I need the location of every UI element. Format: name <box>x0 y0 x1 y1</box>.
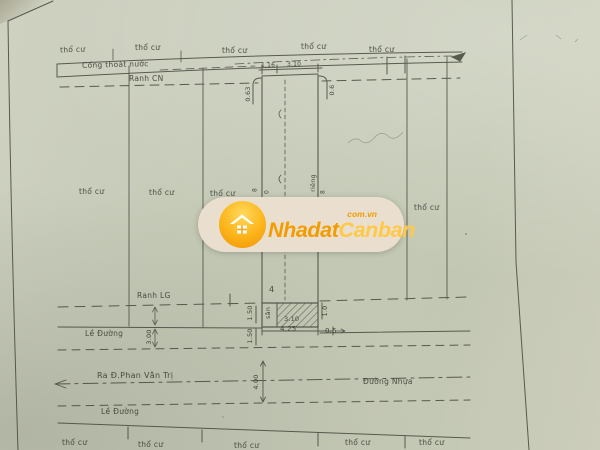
parcel-label: thổ cư <box>60 45 86 55</box>
yard-label: sân <box>264 307 272 319</box>
side-mark: 8 <box>252 188 259 192</box>
dim-right-depth: 1.0 <box>321 306 329 317</box>
watermark-logo: NhadatCanban com.vn <box>198 197 404 252</box>
parcel-label: thổ cư <box>149 188 174 197</box>
drain-label: Cống thoát nước <box>82 59 149 70</box>
side-mark: 0 <box>264 190 271 194</box>
brand-domain: com.vn <box>347 209 377 219</box>
parcel-label: thổ cư <box>369 45 394 54</box>
dim-road-width: 4.00 <box>252 374 260 389</box>
center-mark: 4 <box>269 285 274 294</box>
scanned-survey-photo: thổ cư thổ cư thổ cư thổ cư thổ cư thổ c… <box>0 0 600 450</box>
dim-top-seg-a: 1.16 <box>261 62 275 69</box>
side-mark: 8 <box>320 190 327 194</box>
parcel-label: thổ cư <box>345 438 370 447</box>
parcel-label: thổ cư <box>62 438 87 447</box>
dim-frontage: 4.25 <box>280 325 296 333</box>
ranh-cn-label: Ranh CN <box>129 74 163 83</box>
road-shoulder-label: Lề Đường <box>85 329 123 338</box>
dim-top-seg-b: 3.10 <box>287 61 301 68</box>
dim-house-width: 3.10 <box>284 315 299 323</box>
parcel-label: thổ cư <box>79 187 104 196</box>
parcel-label: thổ cư <box>414 203 439 212</box>
brand-name-part1: Nhadat <box>268 218 338 242</box>
paper-edge-diagonal <box>8 1 53 21</box>
asphalt-road-label: Đường Nhựa <box>363 377 413 386</box>
brand-name: NhadatCanban <box>268 218 415 243</box>
parcel-label: thổ cư <box>301 42 326 51</box>
ranh-lg-label: Ranh LG <box>137 291 171 300</box>
left-border <box>8 21 18 450</box>
dim-offset-left: 0.63 <box>244 86 252 101</box>
logo-badge <box>219 201 266 248</box>
dim-gap-lower: 1.50 <box>246 328 254 343</box>
road-shoulder-label: Lề Đường <box>101 407 139 416</box>
house-icon <box>229 212 255 236</box>
dim-gap-upper: 1.50 <box>246 305 254 320</box>
dim-shoulder-width: 3.00 <box>145 329 153 344</box>
dim-right-gap: 0.5 <box>325 327 337 335</box>
to-street-label: Ra Đ.Phan Văn Trị <box>97 371 173 380</box>
wall-label: riêng <box>309 174 317 192</box>
parcel-label: thổ cư <box>138 440 163 449</box>
brand-name-part2: Canban <box>338 218 414 242</box>
parcel-label: thổ cư <box>234 441 259 450</box>
dim-offset-right: 0.6 <box>328 85 336 96</box>
parcel-label: thổ cư <box>135 43 160 52</box>
parcel-label: thổ cư <box>419 438 444 447</box>
parcel-label: thổ cư <box>222 46 247 55</box>
right-border <box>512 0 529 450</box>
